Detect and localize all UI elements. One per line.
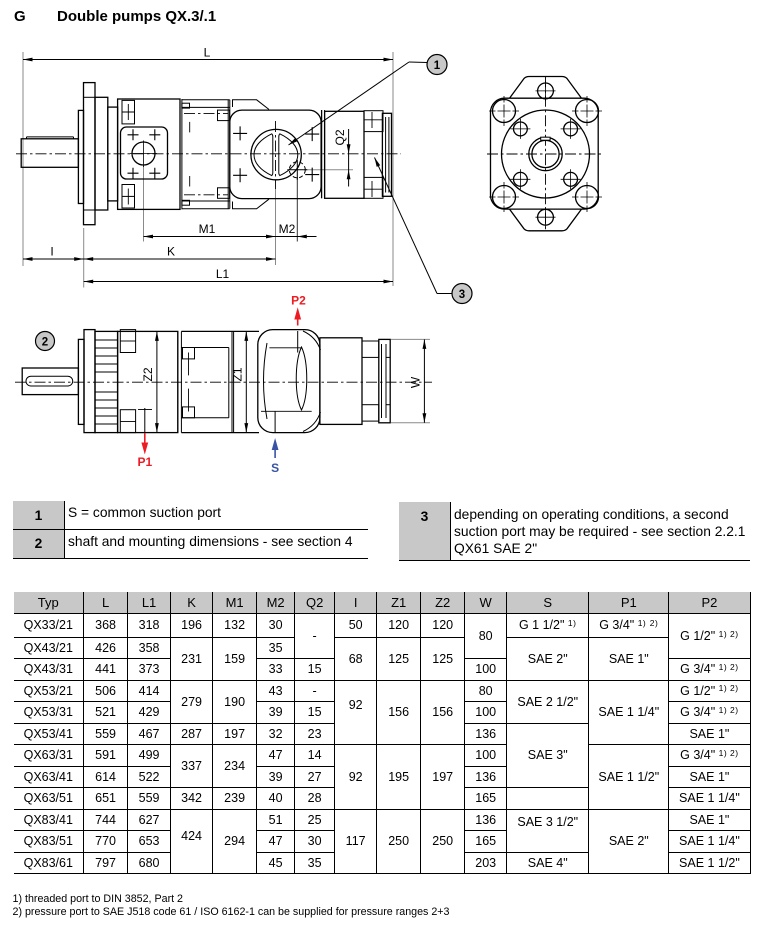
svg-text:W: W: [409, 376, 423, 388]
svg-text:P1: P1: [137, 455, 152, 469]
svg-text:Z2: Z2: [141, 367, 155, 381]
svg-text:L: L: [204, 46, 211, 60]
svg-text:Q2: Q2: [333, 129, 347, 145]
svg-text:S: S: [271, 461, 279, 475]
svg-text:1: 1: [434, 60, 441, 72]
svg-text:2: 2: [42, 336, 48, 348]
svg-text:I: I: [50, 245, 53, 259]
svg-text:P2: P2: [291, 294, 306, 308]
svg-text:M1: M1: [199, 222, 216, 236]
svg-text:Z1: Z1: [231, 367, 245, 381]
svg-text:M2: M2: [279, 222, 296, 236]
svg-text:K: K: [167, 245, 175, 259]
svg-text:3: 3: [459, 289, 465, 301]
svg-text:L1: L1: [216, 267, 230, 281]
